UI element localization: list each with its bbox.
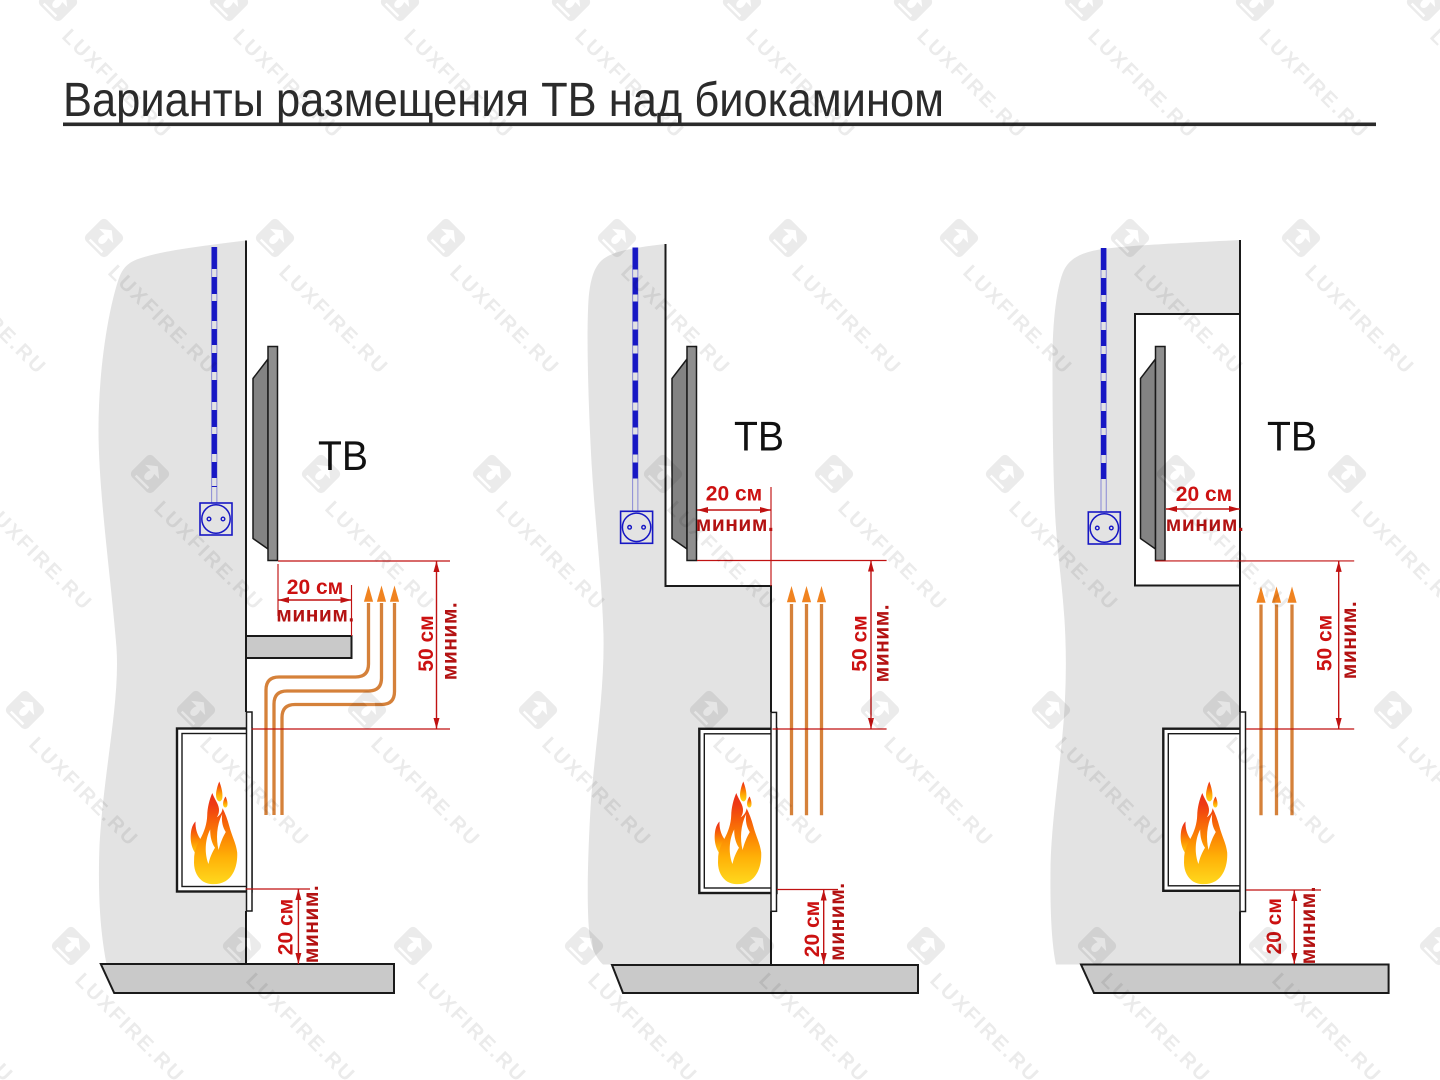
svg-text:50 см: 50 см [1314, 615, 1337, 671]
svg-text:миним.: миним. [300, 885, 323, 963]
svg-text:миним.: миним. [276, 604, 354, 627]
svg-text:ТВ: ТВ [1267, 413, 1317, 460]
svg-text:20 см: 20 см [287, 576, 343, 599]
svg-text:50 см: 50 см [415, 615, 438, 671]
svg-text:20 см: 20 см [801, 901, 824, 957]
svg-text:20 см: 20 см [275, 899, 298, 955]
svg-text:миним.: миним. [1338, 601, 1361, 679]
svg-text:миним.: миним. [871, 604, 894, 682]
svg-text:миним.: миним. [826, 882, 849, 960]
svg-text:ТВ: ТВ [734, 413, 784, 460]
svg-text:50 см: 50 см [849, 615, 872, 671]
svg-text:миним.: миним. [439, 602, 462, 680]
svg-text:миним.: миним. [1297, 886, 1320, 964]
svg-text:20 см: 20 см [706, 483, 762, 506]
